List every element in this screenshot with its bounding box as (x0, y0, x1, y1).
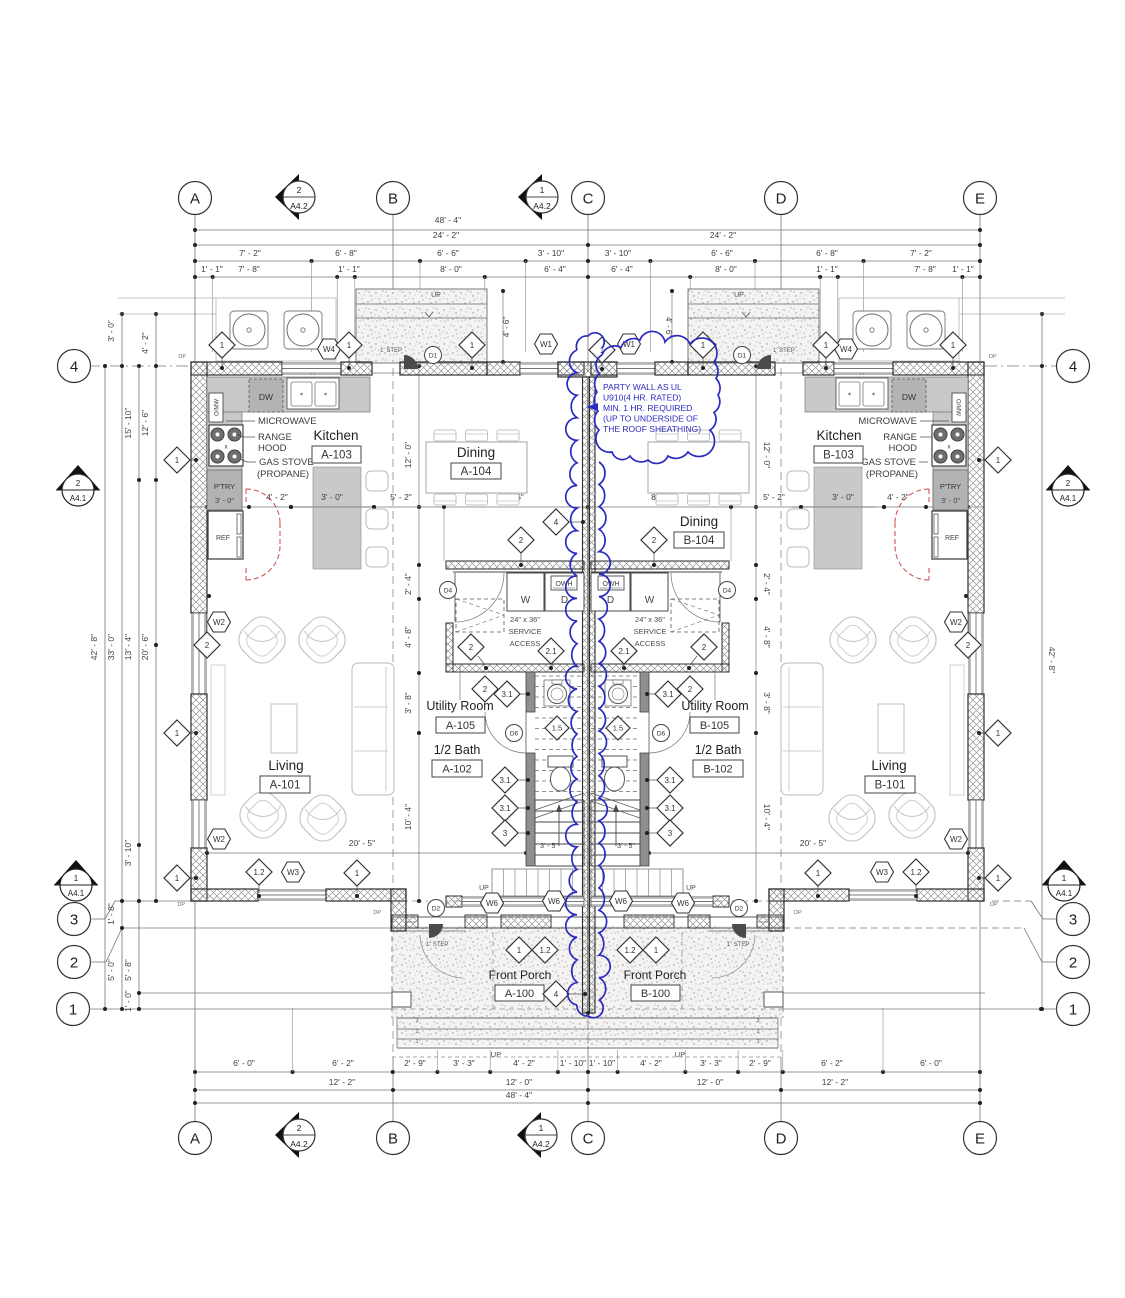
svg-text:D2: D2 (432, 905, 441, 912)
svg-text:1' STEP: 1' STEP (773, 348, 795, 354)
svg-text:2' - 4": 2' - 4" (762, 573, 772, 595)
svg-text:B-102: B-102 (703, 763, 732, 775)
svg-text:4: 4 (1069, 358, 1077, 375)
svg-text:A4.1: A4.1 (68, 889, 85, 898)
svg-text:2: 2 (688, 685, 693, 694)
svg-text:3.1: 3.1 (664, 804, 676, 813)
svg-text:1.2: 1.2 (624, 946, 636, 955)
svg-text:THE ROOF SHEATHING): THE ROOF SHEATHING) (603, 424, 701, 434)
svg-text:1' - 8": 1' - 8" (106, 903, 116, 925)
svg-text:W2: W2 (950, 835, 963, 844)
svg-text:1: 1 (175, 874, 180, 883)
svg-text:A4.2: A4.2 (533, 201, 551, 211)
svg-text:3' - 3": 3' - 3" (700, 1058, 722, 1068)
svg-text:20' - 6": 20' - 6" (140, 634, 150, 660)
svg-text:4: 4 (70, 358, 78, 375)
svg-text:7' - 8": 7' - 8" (914, 264, 936, 274)
svg-text:W3: W3 (876, 868, 889, 877)
svg-text:A4.2: A4.2 (290, 201, 308, 211)
svg-text:W: W (521, 595, 531, 606)
svg-text:1' - 0": 1' - 0" (123, 990, 133, 1012)
svg-text:2: 2 (702, 643, 707, 652)
svg-text:4' - 2": 4' - 2" (887, 492, 909, 502)
svg-text:1' - 1": 1' - 1" (952, 264, 974, 274)
svg-text:4' - 6": 4' - 6" (664, 317, 673, 338)
svg-text:7' - 8": 7' - 8" (238, 264, 260, 274)
svg-text:D: D (776, 1130, 787, 1147)
svg-text:D1: D1 (738, 352, 747, 359)
svg-text:1/2 Bath: 1/2 Bath (434, 743, 481, 757)
svg-text:6' - 2": 6' - 2" (821, 1058, 843, 1068)
svg-text:W1: W1 (540, 340, 553, 349)
svg-text:A-105: A-105 (446, 720, 475, 732)
svg-text:MICROWAVE: MICROWAVE (858, 416, 917, 427)
svg-text:Front Porch: Front Porch (489, 968, 552, 982)
svg-text:3' - 3": 3' - 3" (453, 1058, 475, 1068)
svg-text:x: x (225, 445, 228, 451)
svg-text:2: 2 (297, 1123, 302, 1133)
svg-text:2: 2 (966, 641, 971, 650)
svg-text:1: 1 (824, 341, 829, 350)
svg-text:3: 3 (70, 911, 78, 928)
svg-text:B-105: B-105 (700, 720, 729, 732)
svg-text:4' - 2": 4' - 2" (513, 1058, 535, 1068)
svg-text:1: 1 (355, 869, 360, 878)
svg-text:4' - 6": 4' - 6" (502, 317, 511, 338)
svg-text:ACCESS: ACCESS (510, 639, 541, 648)
svg-text:3' - 10": 3' - 10" (538, 248, 564, 258)
svg-text:U910(4 HR. RATED): U910(4 HR. RATED) (603, 393, 681, 403)
svg-text:1" STEP: 1" STEP (426, 942, 449, 948)
svg-text:A4.2: A4.2 (290, 1139, 308, 1149)
svg-text:6' - 0": 6' - 0" (233, 1058, 255, 1068)
svg-text:1: 1 (996, 729, 1001, 738)
svg-text:W6: W6 (486, 899, 499, 908)
svg-text:SERVICE: SERVICE (509, 627, 542, 636)
svg-text:A-103: A-103 (321, 450, 352, 462)
svg-text:1: 1 (175, 456, 180, 465)
svg-text:P'TRY: P'TRY (214, 482, 235, 491)
svg-text:W3: W3 (287, 868, 300, 877)
svg-text:1' - 1": 1' - 1" (338, 264, 360, 274)
svg-text:3.1: 3.1 (501, 690, 513, 699)
svg-text:MIN. 1 HR. REQUIRED: MIN. 1 HR. REQUIRED (603, 403, 692, 413)
svg-text:3' - 0": 3' - 0" (106, 320, 116, 342)
svg-text:B: B (388, 190, 398, 207)
svg-text:2: 2 (756, 1029, 759, 1035)
svg-text:3.1: 3.1 (499, 804, 511, 813)
svg-text:2: 2 (652, 536, 657, 545)
svg-text:E: E (975, 190, 985, 207)
svg-text:1' - 10": 1' - 10" (589, 1058, 615, 1068)
svg-text:13' - 4": 13' - 4" (123, 634, 133, 660)
svg-text:10' - 4": 10' - 4" (762, 804, 772, 830)
svg-text:1: 1 (996, 456, 1001, 465)
svg-text:4: 4 (554, 990, 559, 999)
svg-text:1: 1 (1069, 1001, 1077, 1018)
svg-text:1: 1 (175, 729, 180, 738)
svg-text:D1: D1 (429, 352, 438, 359)
svg-text:HOOD: HOOD (889, 443, 918, 454)
svg-text:1' - 1": 1' - 1" (816, 264, 838, 274)
svg-text:12' - 0": 12' - 0" (762, 442, 772, 468)
svg-text:5' - 8": 5' - 8" (123, 959, 133, 981)
svg-text:ACCESS: ACCESS (635, 639, 666, 648)
svg-text:20' - 5": 20' - 5" (349, 838, 375, 848)
svg-text:MICROWAVE: MICROWAVE (258, 416, 317, 427)
svg-text:2: 2 (469, 643, 474, 652)
svg-text:DW: DW (259, 392, 273, 402)
svg-text:2: 2 (1066, 479, 1071, 488)
svg-text:(UP TO UNDERSIDE OF: (UP TO UNDERSIDE OF (603, 414, 698, 424)
svg-text:2: 2 (519, 536, 524, 545)
svg-text:DP: DP (990, 902, 998, 908)
svg-text:A: A (190, 1130, 200, 1147)
svg-text:7' - 2": 7' - 2" (910, 248, 932, 258)
svg-text:REF: REF (216, 535, 230, 542)
svg-text:1: 1 (69, 1001, 77, 1018)
svg-text:O/MW: O/MW (215, 399, 221, 416)
svg-text:D: D (607, 595, 614, 606)
svg-text:GAS STOVE: GAS STOVE (861, 457, 916, 468)
svg-text:48' - 4": 48' - 4" (506, 1090, 532, 1100)
svg-text:1: 1 (996, 874, 1001, 883)
svg-text:D4: D4 (444, 587, 453, 594)
svg-text:P'TRY: P'TRY (940, 482, 961, 491)
svg-text:° °: ° ° (859, 373, 864, 379)
svg-text:4' - 8": 4' - 8" (762, 626, 772, 648)
svg-text:3: 3 (415, 1018, 418, 1024)
svg-text:SERVICE: SERVICE (634, 627, 667, 636)
svg-text:5' - 2": 5' - 2" (390, 492, 412, 502)
svg-text:12' - 0": 12' - 0" (506, 1077, 532, 1087)
svg-text:DP: DP (178, 354, 186, 360)
svg-text:A4.1: A4.1 (1056, 889, 1073, 898)
svg-text:D: D (776, 190, 787, 207)
svg-text:2: 2 (205, 641, 210, 650)
svg-text:W4: W4 (323, 345, 336, 354)
svg-text:1: 1 (540, 185, 545, 195)
svg-text:D2: D2 (735, 905, 744, 912)
svg-text:2: 2 (297, 185, 302, 195)
svg-text:20' - 5": 20' - 5" (800, 838, 826, 848)
svg-text:A-104: A-104 (461, 466, 492, 478)
svg-text:12' - 2": 12' - 2" (329, 1077, 355, 1087)
svg-text:(PROPANE): (PROPANE) (257, 469, 309, 480)
svg-text:W6: W6 (548, 897, 561, 906)
svg-text:A: A (190, 190, 200, 207)
svg-text:42' - 8": 42' - 8" (89, 634, 99, 660)
svg-text:B: B (388, 1130, 398, 1147)
svg-text:24' - 2": 24' - 2" (710, 230, 736, 240)
svg-text:2: 2 (76, 479, 81, 488)
svg-text:3: 3 (1069, 911, 1077, 928)
svg-text:1: 1 (654, 946, 659, 955)
svg-text:2: 2 (483, 685, 488, 694)
svg-text:1.2: 1.2 (539, 946, 551, 955)
svg-text:3' - 0": 3' - 0" (321, 492, 343, 502)
svg-text:8' - 0": 8' - 0" (715, 264, 737, 274)
svg-text:1.2: 1.2 (910, 868, 922, 877)
svg-text:1.5: 1.5 (613, 724, 623, 733)
svg-text:1: 1 (701, 341, 706, 350)
svg-text:1: 1 (756, 1039, 759, 1045)
svg-text:3' - 10": 3' - 10" (123, 840, 133, 866)
svg-text:B-100: B-100 (641, 988, 670, 1000)
svg-text:1: 1 (347, 341, 352, 350)
svg-text:15' - 10": 15' - 10" (123, 407, 133, 438)
svg-text:24" x 36": 24" x 36" (635, 615, 665, 624)
svg-text:UP: UP (479, 885, 489, 892)
svg-text:A4.1: A4.1 (1060, 494, 1077, 503)
svg-text:UP: UP (686, 885, 696, 892)
svg-text:W2: W2 (213, 835, 226, 844)
svg-text:OWH: OWH (555, 581, 572, 588)
svg-text:1" STEP: 1" STEP (727, 942, 750, 948)
svg-text:6' - 8": 6' - 8" (335, 248, 357, 258)
svg-text:1: 1 (951, 341, 956, 350)
svg-text:1.5: 1.5 (552, 724, 562, 733)
svg-text:6' - 0": 6' - 0" (920, 1058, 942, 1068)
svg-text:Living: Living (268, 758, 303, 773)
svg-text:RANGE: RANGE (258, 432, 292, 443)
svg-text:HOOD: HOOD (258, 443, 287, 454)
svg-text:7' - 2": 7' - 2" (239, 248, 261, 258)
svg-text:Living: Living (871, 758, 906, 773)
svg-text:D6: D6 (510, 730, 519, 737)
svg-text:3: 3 (668, 829, 673, 838)
svg-text:A-102: A-102 (442, 763, 471, 775)
svg-text:° °: ° ° (310, 373, 315, 379)
svg-text:1: 1 (816, 869, 821, 878)
svg-text:5' - 2": 5' - 2" (763, 492, 785, 502)
svg-text:4' - 2": 4' - 2" (640, 1058, 662, 1068)
svg-text:UP: UP (491, 1050, 501, 1059)
svg-text:UP: UP (675, 1050, 685, 1059)
svg-text:3' - 8": 3' - 8" (403, 692, 413, 714)
svg-text:1: 1 (517, 946, 522, 955)
svg-text:D4: D4 (723, 587, 732, 594)
svg-text:C: C (583, 190, 594, 207)
svg-text:B-104: B-104 (684, 535, 715, 547)
svg-text:1: 1 (539, 1123, 544, 1133)
svg-text:2: 2 (1069, 954, 1077, 971)
svg-text:W: W (645, 595, 655, 606)
svg-text:6' - 6": 6' - 6" (711, 248, 733, 258)
svg-text:4: 4 (554, 518, 559, 527)
svg-text:2.1: 2.1 (545, 647, 557, 656)
svg-text:Dining: Dining (680, 514, 718, 529)
svg-text:6' - 6": 6' - 6" (437, 248, 459, 258)
svg-text:24" x 36": 24" x 36" (510, 615, 540, 624)
svg-text:DW: DW (902, 392, 916, 402)
svg-text:2' - 9": 2' - 9" (749, 1058, 771, 1068)
svg-text:12' - 2": 12' - 2" (822, 1077, 848, 1087)
svg-text:12' - 0": 12' - 0" (697, 1077, 723, 1087)
svg-text:W2: W2 (213, 618, 226, 627)
svg-text:33' - 0": 33' - 0" (106, 634, 116, 660)
svg-text:PARTY WALL AS UL: PARTY WALL AS UL (603, 382, 682, 392)
svg-text:B-103: B-103 (823, 450, 854, 462)
svg-text:1: 1 (220, 341, 225, 350)
svg-text:2: 2 (415, 1029, 418, 1035)
svg-text:4' - 2": 4' - 2" (140, 332, 150, 354)
svg-text:D6: D6 (657, 730, 666, 737)
svg-text:DP: DP (989, 354, 997, 360)
svg-text:5' - 0": 5' - 0" (106, 959, 116, 981)
svg-text:12' - 0": 12' - 0" (403, 442, 413, 468)
svg-text:1.2: 1.2 (253, 868, 265, 877)
svg-text:4' - 8": 4' - 8" (403, 626, 413, 648)
svg-text:1' STEP: 1' STEP (380, 348, 402, 354)
svg-text:8' - 0": 8' - 0" (440, 264, 462, 274)
svg-text:12' - 6": 12' - 6" (140, 410, 150, 436)
svg-text:10' - 4": 10' - 4" (403, 804, 413, 830)
svg-text:C: C (583, 1130, 594, 1147)
svg-text:48' - 4": 48' - 4" (435, 215, 461, 225)
svg-text:Kitchen: Kitchen (816, 428, 861, 443)
svg-text:A4.1: A4.1 (70, 494, 87, 503)
svg-text:6' - 8": 6' - 8" (816, 248, 838, 258)
svg-text:2' - 4": 2' - 4" (403, 573, 413, 595)
svg-text:W6: W6 (677, 899, 690, 908)
svg-text:2: 2 (70, 954, 78, 971)
svg-text:3' - 0": 3' - 0" (832, 492, 854, 502)
svg-text:A-101: A-101 (270, 780, 301, 792)
svg-text:3' - 0": 3' - 0" (215, 496, 234, 505)
svg-text:B-101: B-101 (875, 780, 906, 792)
svg-text:1: 1 (1062, 874, 1067, 883)
svg-text:x: x (948, 445, 951, 451)
svg-text:3.1: 3.1 (499, 776, 511, 785)
svg-text:24' - 2": 24' - 2" (433, 230, 459, 240)
svg-text:W6: W6 (615, 897, 628, 906)
svg-text:UP: UP (734, 292, 744, 299)
svg-text:3' - 10": 3' - 10" (605, 248, 631, 258)
svg-text:1: 1 (470, 341, 475, 350)
svg-text:1' - 1": 1' - 1" (201, 264, 223, 274)
svg-text:2' - 9": 2' - 9" (404, 1058, 426, 1068)
svg-text:W4: W4 (840, 345, 853, 354)
svg-text:4' - 2": 4' - 2" (266, 492, 288, 502)
svg-text:1' - 10": 1' - 10" (560, 1058, 586, 1068)
svg-text:Kitchen: Kitchen (313, 428, 358, 443)
svg-text:6' - 4": 6' - 4" (544, 264, 566, 274)
svg-text:DP: DP (177, 902, 185, 908)
svg-text:3.1: 3.1 (662, 690, 674, 699)
svg-text:6' - 2": 6' - 2" (332, 1058, 354, 1068)
svg-text:42' - 8": 42' - 8" (1047, 647, 1057, 673)
svg-text:UP: UP (431, 292, 441, 299)
svg-text:3' - 8": 3' - 8" (762, 692, 772, 714)
svg-text:1: 1 (415, 1039, 418, 1045)
svg-text:(PROPANE): (PROPANE) (866, 469, 918, 480)
svg-text:E: E (975, 1130, 985, 1147)
svg-text:1: 1 (74, 874, 79, 883)
svg-text:REF: REF (945, 535, 959, 542)
svg-text:O/MW: O/MW (955, 399, 961, 416)
svg-text:2.1: 2.1 (618, 647, 630, 656)
svg-text:3: 3 (503, 829, 508, 838)
svg-text:A-100: A-100 (505, 988, 534, 1000)
svg-text:GAS STOVE: GAS STOVE (259, 457, 314, 468)
svg-text:3.1: 3.1 (664, 776, 676, 785)
svg-text:3: 3 (756, 1018, 759, 1024)
svg-text:DP: DP (794, 910, 802, 916)
svg-text:DP: DP (373, 910, 381, 916)
svg-text:W2: W2 (950, 618, 963, 627)
svg-text:6' - 4": 6' - 4" (611, 264, 633, 274)
svg-text:1/2 Bath: 1/2 Bath (695, 743, 742, 757)
svg-text:RANGE: RANGE (883, 432, 917, 443)
svg-text:A4.2: A4.2 (532, 1139, 550, 1149)
svg-text:Front Porch: Front Porch (624, 968, 687, 982)
svg-text:3' - 0": 3' - 0" (941, 496, 960, 505)
svg-text:Dining: Dining (457, 445, 495, 460)
